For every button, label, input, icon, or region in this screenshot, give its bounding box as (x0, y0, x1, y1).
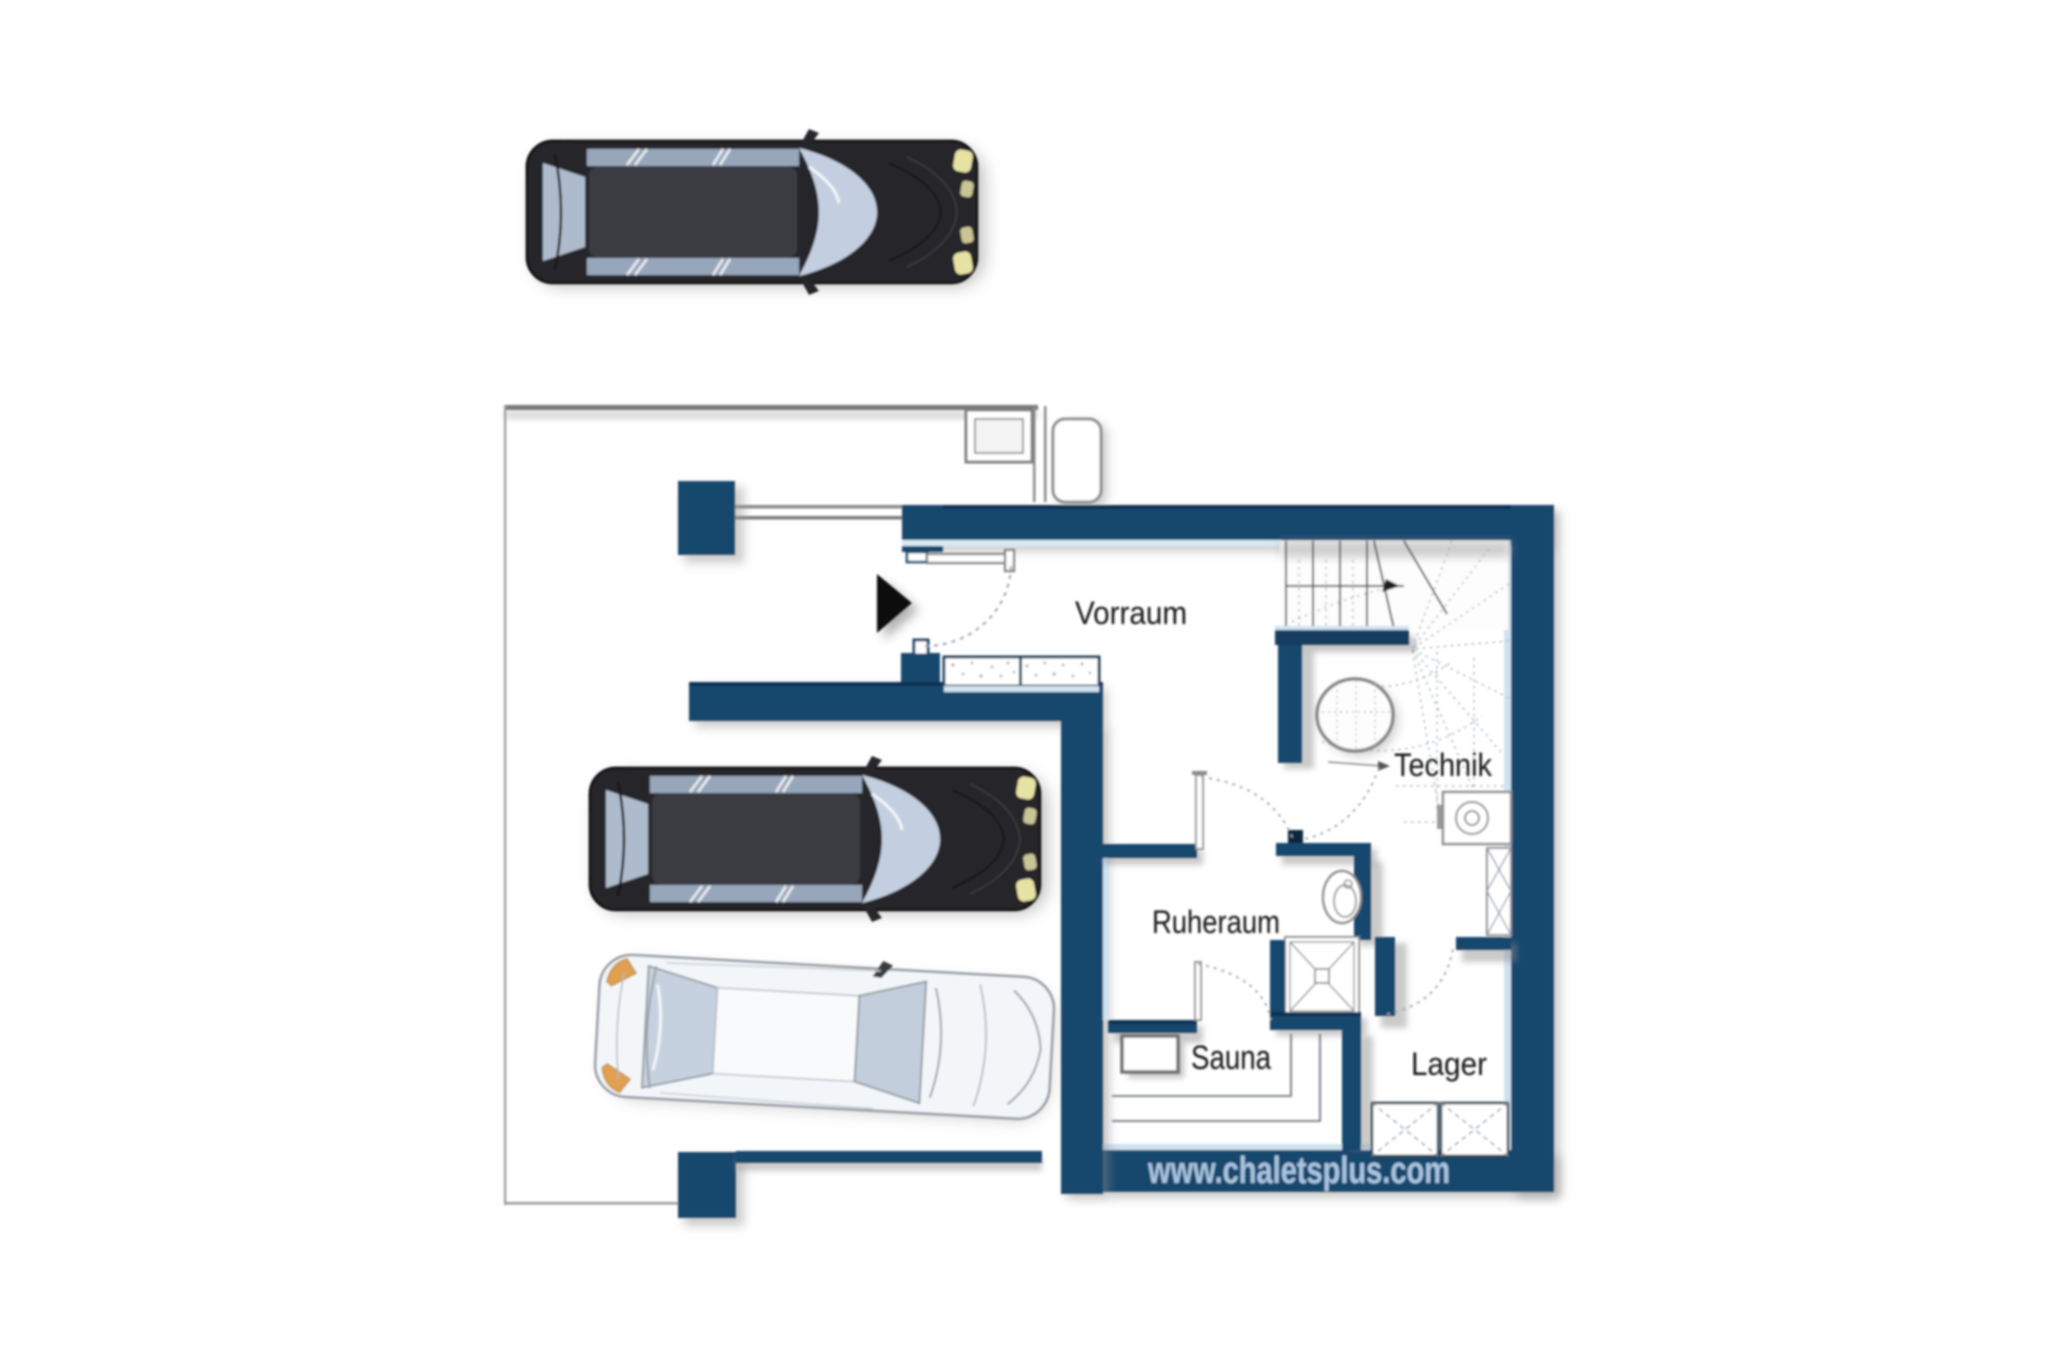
svg-text:Lager: Lager (1411, 1046, 1487, 1082)
svg-text:Technik: Technik (1394, 747, 1493, 783)
svg-text:Vorraum: Vorraum (1075, 595, 1187, 631)
svg-text:Ruheraum: Ruheraum (1152, 904, 1280, 940)
svg-text:Sauna: Sauna (1191, 1039, 1271, 1077)
